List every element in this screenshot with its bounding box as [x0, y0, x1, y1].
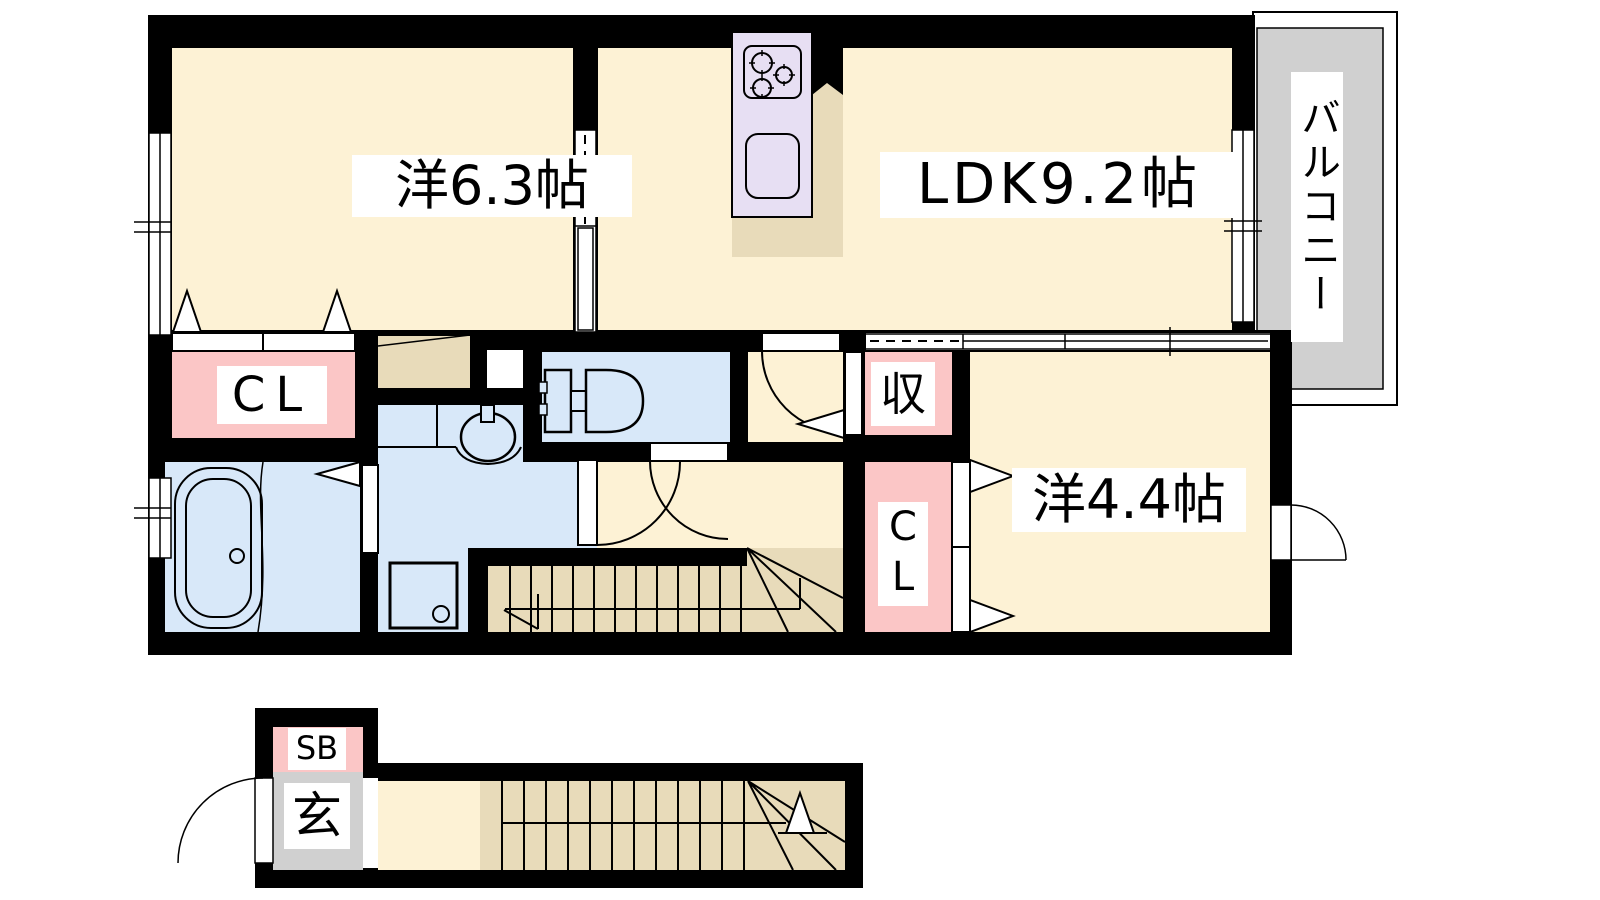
- entrance-opening: [363, 778, 378, 868]
- entrance-label: 玄: [284, 783, 350, 849]
- floor-plan: 洋6.3帖 LDK9.2帖 洋4.4帖 CL 収 CL バルコニー SB 玄: [0, 0, 1600, 900]
- west44-exterior-door-icon: [1271, 505, 1346, 560]
- window-bathroom-left-icon: [134, 478, 171, 558]
- entrance-door-icon: [178, 778, 273, 863]
- toilet-icon: [539, 370, 643, 432]
- room-label-west-6-3: 洋6.3帖: [352, 155, 632, 217]
- floor-plan-drawing: [0, 0, 1600, 900]
- shoebox-label: SB: [288, 728, 346, 770]
- room-label-west-4-4: 洋4.4帖: [1012, 468, 1246, 532]
- closet-small-label: CL: [878, 502, 928, 606]
- window-west63-left-icon: [134, 133, 171, 335]
- closet-main-label: CL: [217, 366, 327, 424]
- storage-label: 収: [871, 362, 935, 426]
- balcony-label: バルコニー: [1291, 72, 1343, 342]
- room-label-ldk: LDK9.2帖: [880, 152, 1238, 218]
- kitchen-counter-icon: [732, 32, 812, 217]
